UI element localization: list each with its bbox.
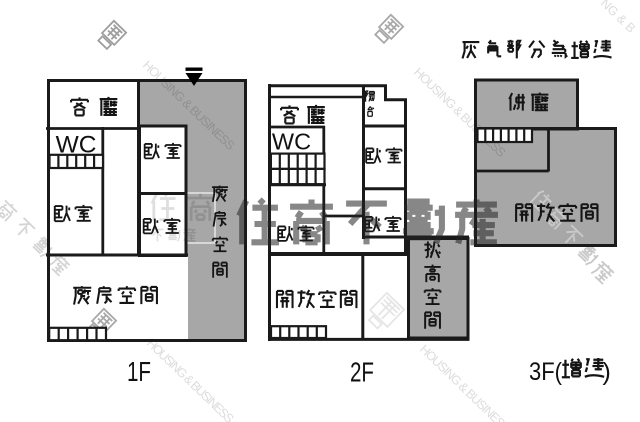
svg-text:): ) xyxy=(603,358,611,386)
svg-text:1F: 1F xyxy=(127,356,151,387)
svg-text:3F(: 3F( xyxy=(529,358,563,386)
svg-text:WC: WC xyxy=(272,129,311,155)
svg-text:WC: WC xyxy=(56,132,97,159)
svg-text:2F: 2F xyxy=(350,357,374,388)
